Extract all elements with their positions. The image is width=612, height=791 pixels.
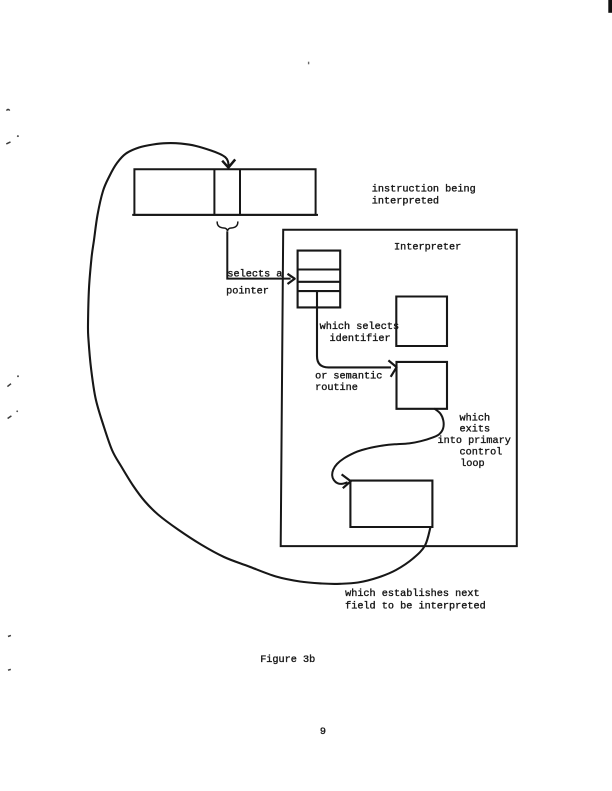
svg-text:control: control — [460, 447, 503, 459]
svg-text:into primary: into primary — [438, 435, 511, 447]
svg-text:which establishes next: which establishes next — [345, 588, 480, 600]
svg-text:loop: loop — [460, 458, 484, 470]
svg-text:instruction being: instruction being — [372, 184, 476, 196]
svg-text:pointer: pointer — [226, 286, 269, 298]
svg-text:routine: routine — [315, 382, 358, 394]
svg-text:Figure 3b: Figure 3b — [260, 654, 315, 666]
svg-text:interpreted: interpreted — [372, 195, 439, 207]
svg-text:or semantic: or semantic — [315, 371, 382, 383]
svg-text:which selects: which selects — [320, 321, 399, 333]
svg-text:Interpreter: Interpreter — [394, 243, 461, 254]
svg-text:selects a: selects a — [227, 268, 282, 280]
svg-text:which: which — [460, 412, 491, 424]
svg-text:identifier: identifier — [330, 333, 391, 345]
svg-text:exits: exits — [460, 424, 491, 436]
svg-text:field to be interpreted: field to be interpreted — [345, 600, 486, 612]
svg-text:9: 9 — [320, 727, 326, 738]
